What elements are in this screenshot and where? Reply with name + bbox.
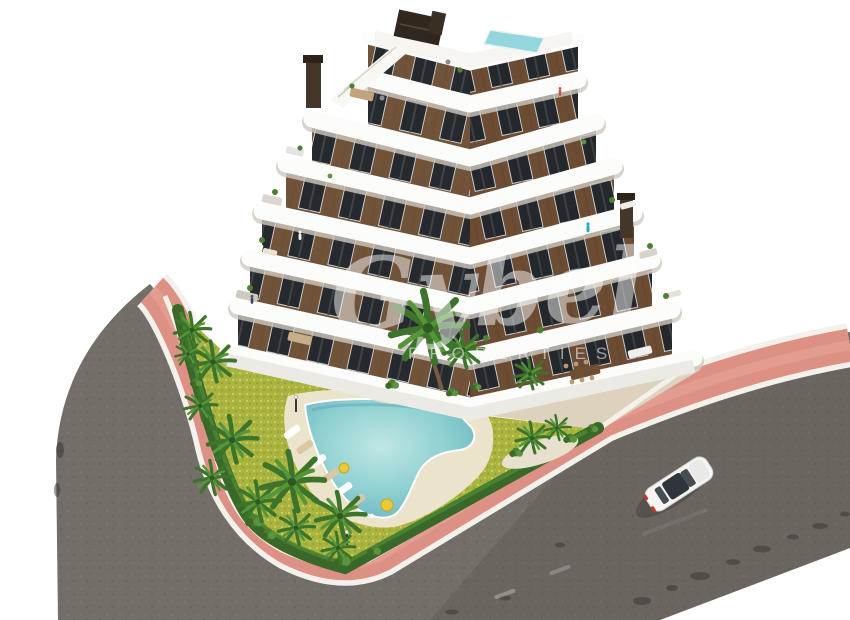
- render-canvas: Gybel PROPERTIES: [0, 0, 850, 620]
- scene-svg: [0, 0, 850, 620]
